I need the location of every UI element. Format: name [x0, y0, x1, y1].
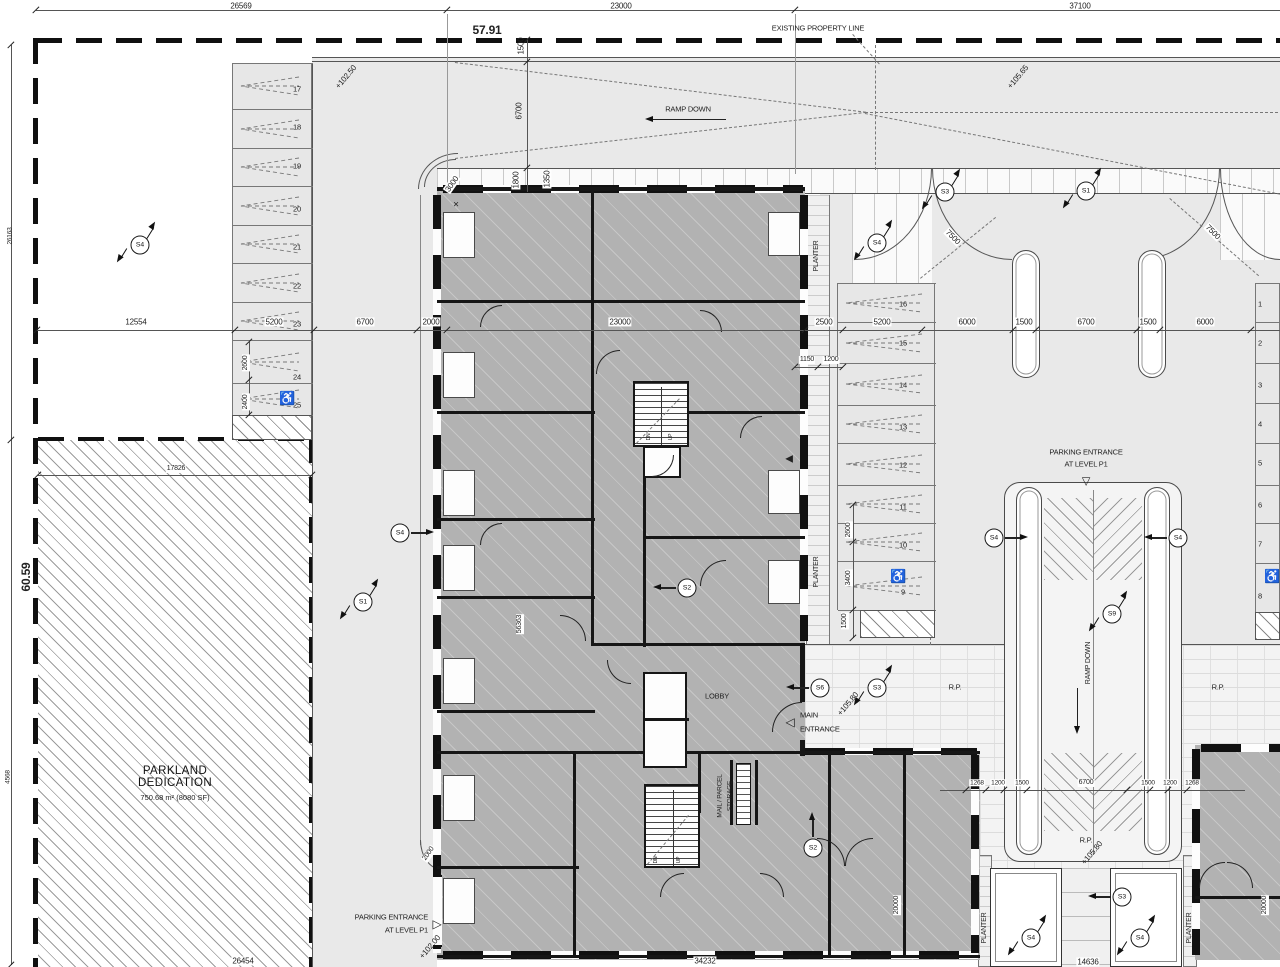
- parking-entrance-label: AT LEVEL P1: [1064, 461, 1107, 470]
- parking-entrance-label: PARKING ENTRANCE: [355, 914, 428, 923]
- wall: [437, 411, 595, 414]
- dim-label: DN: [654, 857, 660, 864]
- dim-label: 23000: [610, 1, 631, 10]
- dim-label: 1500: [1139, 317, 1158, 326]
- wall: [437, 300, 805, 303]
- dim-label: 2400: [242, 394, 250, 411]
- stall-line: [233, 186, 313, 187]
- stall-line: [1256, 523, 1280, 524]
- ramp-chevrons: [1093, 753, 1142, 831]
- stall-number: 1: [1258, 301, 1262, 310]
- section-marker-s3: S3: [1113, 888, 1132, 907]
- dim-label: 26454: [231, 956, 254, 965]
- stall-line: [233, 148, 313, 149]
- window-wall: [800, 195, 808, 641]
- stall-line: [1256, 363, 1280, 364]
- island: [1144, 487, 1170, 855]
- accessible-parking-icon: ♿: [279, 392, 295, 407]
- marker-arrowhead: [426, 529, 434, 535]
- stall-line: [1256, 322, 1280, 323]
- section-flag: [148, 220, 157, 230]
- property-line: [33, 38, 38, 967]
- dim-label: 1350: [542, 170, 551, 189]
- stall-number: 6: [1258, 502, 1262, 511]
- main-entrance-label: ENTRANCE: [800, 726, 840, 735]
- stair-rail: [673, 790, 674, 866]
- roadway: [312, 57, 437, 967]
- stall-arrow: [237, 156, 301, 178]
- road-edge: [312, 57, 1280, 58]
- bay-niche: [768, 470, 800, 514]
- rp-label: R.P.: [1212, 684, 1225, 693]
- stall-line: [1256, 563, 1280, 564]
- stall-arrow: [842, 531, 924, 553]
- stall-line: [838, 443, 936, 444]
- stall-number: 5: [1258, 460, 1262, 469]
- elevator-bank: [643, 672, 687, 768]
- dim-label: 4568: [4, 770, 11, 784]
- section-marker-s4: S4: [985, 529, 1004, 548]
- stall-arrow: [237, 118, 301, 140]
- wall: [903, 751, 906, 957]
- dim-label: 5200: [873, 317, 892, 326]
- dimension-line: [853, 505, 854, 638]
- dim-label: 20000: [1261, 895, 1269, 915]
- stall-arrow: [237, 272, 301, 294]
- parking-entrance-label: PARKING ENTRANCE: [1049, 449, 1122, 458]
- dim-label: 1268: [1184, 779, 1200, 786]
- island: [1016, 487, 1042, 855]
- stall-line: [838, 485, 936, 486]
- bay-niche: [768, 212, 800, 256]
- hatch-strip: [1255, 612, 1280, 640]
- stall-arrow: [237, 195, 301, 217]
- stall-arrow: [842, 332, 924, 354]
- bay-niche: [443, 470, 475, 516]
- dim-label: 1200: [990, 779, 1006, 786]
- grid-line: [795, 14, 796, 174]
- building-rooms: [437, 753, 980, 960]
- curb: [420, 195, 421, 845]
- dim-label: 6700: [356, 317, 375, 326]
- property-line: [36, 38, 1280, 43]
- elevator-divider: [645, 718, 689, 721]
- dim-label: 23000: [608, 317, 631, 326]
- mail-parcel-label: MAIL / PARCEL: [716, 774, 723, 817]
- stall-line: [233, 263, 313, 264]
- dim-label: 26569: [230, 1, 251, 10]
- ramp-chevrons: [1044, 753, 1093, 831]
- stall-line: [838, 283, 936, 284]
- island: [1138, 250, 1166, 378]
- dim-label: 1150: [799, 356, 815, 364]
- courtyard: [990, 868, 1062, 967]
- planter-label: PLANTER: [813, 241, 821, 272]
- dim-label: 6700: [1078, 779, 1095, 787]
- island: [1012, 250, 1040, 378]
- dim-label: 1500: [1140, 779, 1156, 786]
- section-flag: [114, 254, 123, 264]
- rp-label: R.P.: [1080, 837, 1093, 846]
- hatch-strip: [232, 415, 312, 440]
- stall-line: [838, 363, 936, 364]
- dimension-line: [37, 330, 1280, 331]
- sight-line: [865, 112, 1278, 113]
- ramp-chevrons: [1093, 498, 1142, 580]
- parkland-title: PARKLAND DEDICATION: [138, 765, 212, 789]
- stall-line: [233, 340, 313, 341]
- dim-label: 6700: [1077, 317, 1096, 326]
- wall: [755, 760, 758, 825]
- stall-number: 24: [293, 374, 301, 383]
- dim-label: 37100: [1069, 1, 1090, 10]
- parkland-area: PARKLAND DEDICATION 750.68 m² (8080 SF): [38, 440, 312, 967]
- mail-parcel-label: STORAGE: [726, 781, 733, 811]
- road-edge: [312, 63, 313, 967]
- dim-label: UP: [669, 434, 675, 441]
- dim-label: 1800: [511, 171, 520, 190]
- site-plan-canvas: PARKLAND DEDICATION 750.68 m² (8080 SF) …: [0, 0, 1280, 967]
- ramp-down-label: RAMP DOWN: [665, 106, 711, 115]
- bay-niche: [443, 212, 475, 258]
- entrance-arrow: ▷: [432, 918, 441, 932]
- wall: [591, 643, 805, 646]
- bay-niche: [443, 878, 475, 924]
- wall: [643, 536, 805, 539]
- stall-arrow: [842, 575, 924, 597]
- stall-arrow: [237, 75, 301, 97]
- wall: [573, 751, 576, 957]
- marker-arrowhead: [653, 584, 661, 590]
- marker-arrowhead: [1088, 893, 1096, 899]
- dim-label: 2600: [242, 355, 250, 372]
- building-rooms: [1195, 745, 1280, 960]
- dim-label: 1500: [1014, 779, 1030, 786]
- bay-niche: [443, 658, 475, 704]
- stall-arrow: [842, 373, 924, 395]
- stall-line: [233, 109, 313, 110]
- ramp-arrow: [652, 119, 726, 120]
- ramp-down-label: RAMP DOWN: [1085, 642, 1093, 684]
- marker-arrowhead: [1020, 534, 1028, 540]
- dim-label: 6000: [1196, 317, 1215, 326]
- dim-label: 1500: [1015, 317, 1034, 326]
- section-marker-s2: S2: [804, 839, 823, 858]
- lobby-label: LOBBY: [705, 693, 729, 702]
- dim-label: 5200: [265, 317, 284, 326]
- parking-right-stalls: 12345678: [1255, 283, 1280, 612]
- window-wall: [1201, 744, 1280, 752]
- stall-line: [1256, 443, 1280, 444]
- accessible-parking-icon: ♿: [1264, 570, 1280, 585]
- door-wedge: ◀: [785, 453, 793, 465]
- entrance-arrow: ◁: [785, 716, 794, 730]
- wall: [437, 596, 595, 599]
- ramp-arrow: [1077, 688, 1078, 726]
- ramp-centerline: [1093, 490, 1094, 855]
- stall-line: [233, 63, 313, 64]
- bay-niche: [443, 775, 475, 821]
- parking-entrance-label: AT LEVEL P1: [385, 927, 428, 936]
- marker-arrowhead: [809, 812, 815, 820]
- dim-label: ×: [453, 199, 459, 211]
- dim-label: 1200: [823, 356, 840, 364]
- dim-label: 2600: [845, 522, 853, 539]
- marker-arrowhead: [786, 684, 794, 690]
- wall: [591, 187, 594, 646]
- stall-line: [838, 405, 936, 406]
- dim-label: 6700: [514, 103, 523, 120]
- marker-arrow: [659, 587, 676, 588]
- stall-number: 2: [1258, 340, 1262, 349]
- dim-label: UP: [677, 857, 683, 864]
- dim-label: 14636: [1076, 957, 1099, 966]
- wall: [800, 643, 805, 702]
- dim-label: 2500: [815, 317, 834, 326]
- parkland-area-value: 750.68 m² (8080 SF): [140, 793, 209, 802]
- section-marker-s6: S6: [811, 679, 830, 698]
- accessible-parking-icon: ♿: [890, 570, 906, 585]
- section-marker-s4: S4: [391, 524, 410, 543]
- property-line-label: EXISTING PROPERTY LINE: [772, 25, 864, 34]
- wall: [437, 187, 805, 191]
- dim-label: DN: [647, 434, 653, 441]
- dim-label: 2000: [422, 317, 441, 326]
- dim-label: 26163: [6, 227, 13, 244]
- dimension-line: [795, 367, 843, 368]
- main-entrance-label: MAIN: [800, 712, 818, 721]
- stall-line: [233, 302, 313, 303]
- dim-label: 1500: [516, 38, 525, 55]
- ramp-chevrons: [1044, 498, 1093, 580]
- bay-niche: [768, 560, 800, 604]
- wall: [800, 740, 805, 756]
- stall-line: [233, 225, 313, 226]
- planter-label: PLANTER: [813, 557, 821, 588]
- wall: [437, 866, 579, 869]
- dimension-line: [36, 10, 1280, 11]
- rp-label: R.P.: [949, 684, 962, 693]
- stall-arrow: [842, 413, 924, 435]
- dimension-line: [38, 475, 312, 476]
- dim-label: 3400: [845, 570, 853, 587]
- marker-arrow: [1150, 537, 1167, 538]
- section-marker-s4: S4: [1169, 529, 1188, 548]
- hatch-strip: [860, 610, 935, 638]
- dim-label: 1268: [969, 779, 985, 786]
- dim-tick: [7, 961, 14, 967]
- dimension-line: [11, 45, 12, 965]
- walkway: [1062, 868, 1110, 967]
- stall-number: 8: [1258, 593, 1262, 602]
- planter-label: PLANTER: [1186, 913, 1194, 944]
- wall: [437, 710, 595, 713]
- section-marker-s2: S2: [678, 579, 697, 598]
- property-line-ext: [875, 45, 876, 170]
- stall-number: 4: [1258, 421, 1262, 430]
- elevation-benchmark: 57.91: [472, 24, 501, 38]
- marker-arrow: [1094, 896, 1111, 897]
- dim-label: 34232: [693, 956, 716, 965]
- dim-label: 20000: [893, 895, 901, 915]
- bay-niche: [443, 352, 475, 398]
- stall-number: 7: [1258, 541, 1262, 550]
- dim-label: 56363: [516, 614, 524, 634]
- dim-label: 1500: [841, 613, 849, 630]
- stall-line: [1256, 283, 1280, 284]
- stall-arrow: [842, 453, 924, 475]
- marker-arrow: [812, 820, 813, 837]
- window-wall: [433, 195, 441, 953]
- elevation-benchmark: 60.59: [20, 562, 34, 591]
- wall: [437, 518, 595, 521]
- wall: [437, 751, 980, 754]
- bay-niche: [443, 545, 475, 591]
- marker-arrowhead: [1144, 534, 1152, 540]
- dim-label: 17826: [166, 465, 186, 473]
- ramp-arrowhead: [645, 116, 653, 122]
- ramp-arrowhead: [1074, 726, 1080, 734]
- dim-label: 6000: [958, 317, 977, 326]
- dim-label: 12554: [124, 317, 147, 326]
- dim-label: 1200: [1162, 779, 1178, 786]
- stall-arrow: [842, 292, 924, 314]
- mail-shelving: [736, 763, 751, 825]
- marker-arrow: [792, 687, 809, 688]
- entrance-arrow: ▽: [1082, 476, 1090, 489]
- stall-line: [1256, 485, 1280, 486]
- grid-line: [447, 14, 448, 190]
- stall-line: [1256, 403, 1280, 404]
- stall-number: 3: [1258, 382, 1262, 391]
- planter-label: PLANTER: [981, 913, 989, 944]
- stall-arrow: [237, 233, 301, 255]
